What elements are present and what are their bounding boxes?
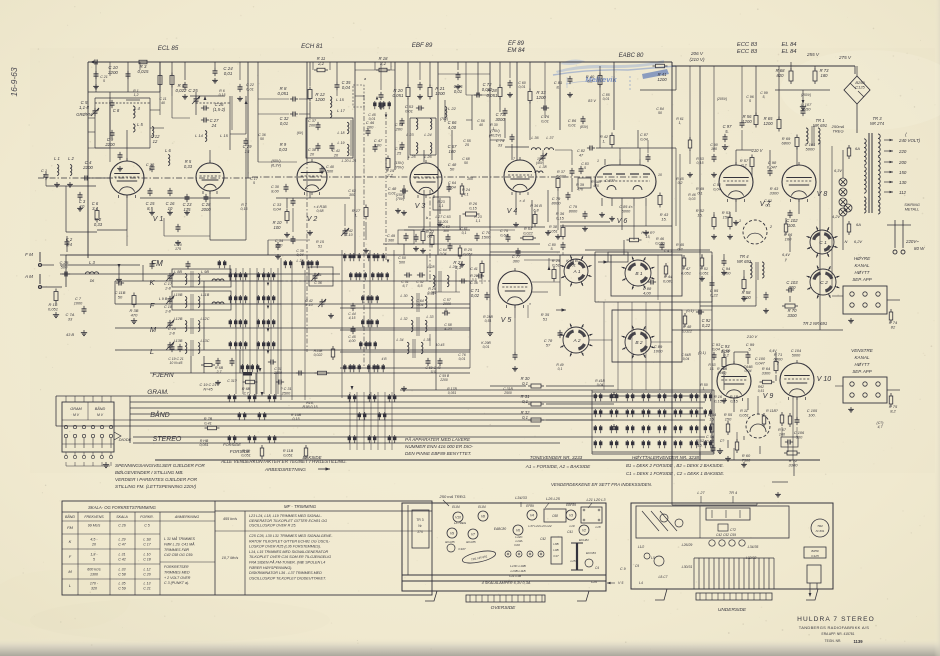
svg-text:100: 100 xyxy=(274,225,282,230)
svg-text:(40,5V): (40,5V) xyxy=(489,133,502,137)
svg-text:0,04: 0,04 xyxy=(712,347,721,352)
svg-text:R 49: R 49 xyxy=(696,187,705,191)
svg-text:(1,5-2): (1,5-2) xyxy=(213,107,226,112)
svg-text:5: 5 xyxy=(103,79,105,83)
svg-text:1,: 1, xyxy=(602,139,605,143)
svg-text:L 20 L 21: L 20 L 21 xyxy=(342,159,357,163)
svg-text:OSCILLOSKOP OVER R 25.: OSCILLOSKOP OVER R 25. xyxy=(249,524,296,528)
svg-text:210 V: 210 V xyxy=(746,334,758,339)
svg-text:16-9-63: 16-9-63 xyxy=(9,67,19,97)
svg-text:5?: 5? xyxy=(546,343,551,348)
svg-text:0,01: 0,01 xyxy=(603,97,610,101)
svg-text:C 1: C 1 xyxy=(819,240,827,246)
svg-text:+ 2 VOLT OVER: + 2 VOLT OVER xyxy=(164,576,191,580)
svg-text:GRAM: GRAM xyxy=(70,407,82,411)
svg-text:C 38: C 38 xyxy=(308,148,317,152)
svg-text:L 31: L 31 xyxy=(119,553,126,557)
svg-text:KANAL: KANAL xyxy=(854,355,870,360)
svg-text:2500: 2500 xyxy=(281,391,291,395)
svg-text:C9: C9 xyxy=(635,564,639,568)
svg-text:(210 V): (210 V) xyxy=(689,57,705,62)
svg-text:L21 L20 L3: L21 L20 L3 xyxy=(586,498,606,502)
svg-text:0,015: 0,015 xyxy=(138,69,150,74)
svg-text:6A: 6A xyxy=(856,222,861,227)
svg-text:V2: V2 xyxy=(582,529,586,533)
svg-text:0,01: 0,01 xyxy=(483,345,490,349)
svg-text:(70V): (70V) xyxy=(440,117,448,121)
svg-text:0,15: 0,15 xyxy=(556,216,565,221)
svg-text:5.: 5. xyxy=(748,347,751,352)
svg-text:275 V: 275 V xyxy=(838,55,852,60)
svg-text:0,051: 0,051 xyxy=(448,391,457,395)
svg-text:L18: L18 xyxy=(595,525,600,529)
svg-text:C 36: C 36 xyxy=(314,281,322,285)
svg-text:C 87: C 87 xyxy=(640,133,649,137)
svg-text:0,047: 0,047 xyxy=(767,165,778,170)
svg-text:L13C: L13C xyxy=(200,339,209,343)
svg-text:V6: V6 xyxy=(516,529,520,533)
svg-text:0,051: 0,051 xyxy=(548,229,558,233)
svg-text:Nr 691: Nr 691 xyxy=(816,529,825,533)
svg-text:50: 50 xyxy=(450,167,455,172)
svg-text:C 18: C 18 xyxy=(143,558,151,562)
svg-text:15: 15 xyxy=(245,149,250,154)
svg-text:C 25: C 25 xyxy=(188,88,198,93)
svg-text:R 46: R 46 xyxy=(656,237,665,241)
svg-text:SPENNINGSANGIVELSER GJELDER FO: SPENNINGSANGIVELSER GJELDER FOR xyxy=(115,463,206,468)
svg-text:L37 L24 L23 L22: L37 L24 L23 L22 xyxy=(528,524,552,528)
svg-text:TEGN. NR.: TEGN. NR. xyxy=(825,639,842,643)
svg-text:C 49: C 49 xyxy=(387,234,396,238)
svg-text:20: 20 xyxy=(333,153,339,157)
svg-text:C 7: C 7 xyxy=(75,297,82,301)
svg-text:0,01: 0,01 xyxy=(369,117,376,121)
svg-text:L14, L15 TRIMMES MED SIGNALGEN: L14, L15 TRIMMES MED SIGNALGENERATOR xyxy=(249,550,329,554)
svg-text:R 15: R 15 xyxy=(316,240,325,244)
svg-text:1,1: 1,1 xyxy=(476,219,481,223)
svg-text:0,22: 0,22 xyxy=(710,293,719,298)
svg-text:(60V): (60V) xyxy=(271,159,281,163)
svg-text:L 15: L 15 xyxy=(220,133,228,138)
svg-text:0,51: 0,51 xyxy=(485,319,492,323)
svg-text:C72: C72 xyxy=(730,528,736,532)
svg-text:7500: 7500 xyxy=(742,458,751,463)
svg-text:C 26: C 26 xyxy=(118,524,126,528)
svg-text:V8: V8 xyxy=(481,515,485,519)
svg-text:0,051: 0,051 xyxy=(278,91,290,96)
svg-text:1200: 1200 xyxy=(657,77,667,82)
svg-text:1139: 1139 xyxy=(853,639,863,644)
svg-text:L 36: L 36 xyxy=(531,136,539,140)
svg-text:15,: 15, xyxy=(646,235,651,239)
svg-text:C 41: C 41 xyxy=(332,149,340,153)
svg-text:OVERSIDE: OVERSIDE xyxy=(491,605,517,611)
svg-text:L4: L4 xyxy=(639,581,643,585)
svg-text:20: 20 xyxy=(309,152,315,156)
svg-text:L23 L24, L18, L19 TRIMMES MED: L23 L24, L18, L19 TRIMMES MED SIGNAL- xyxy=(249,514,323,518)
svg-text:R 37: R 37 xyxy=(557,170,566,174)
svg-text:L 8B: L 8B xyxy=(174,270,182,274)
svg-text:V 5: V 5 xyxy=(618,581,623,585)
svg-text:110: 110 xyxy=(430,370,436,374)
svg-text:L19: L19 xyxy=(569,524,574,528)
svg-text:4 SKALALAMPER 6,3V 0,3A: 4 SKALALAMPER 6,3V 0,3A xyxy=(482,581,531,585)
svg-text:1,8 -: 1,8 - xyxy=(90,553,98,557)
svg-text:1000: 1000 xyxy=(74,301,83,305)
svg-text:(0,1): (0,1) xyxy=(698,351,707,355)
svg-text:0,04: 0,04 xyxy=(440,252,447,256)
svg-text:FORKRETSER: FORKRETSER xyxy=(164,565,189,569)
svg-text:5000: 5000 xyxy=(806,147,816,152)
svg-text:2,2: 2,2 xyxy=(317,61,324,66)
svg-text:6,5: 6,5 xyxy=(418,284,423,288)
svg-text:0,04: 0,04 xyxy=(640,137,647,141)
svg-text:(83V): (83V) xyxy=(580,125,588,129)
svg-text:0,1: 0,1 xyxy=(522,415,528,420)
svg-text:SEP. APP: SEP. APP xyxy=(852,277,871,282)
svg-text:C41: C41 xyxy=(567,530,573,534)
svg-text:EL 84: EL 84 xyxy=(781,42,796,48)
svg-text:0,15: 0,15 xyxy=(241,207,248,211)
svg-text:80 W: 80 W xyxy=(914,246,925,251)
svg-text:C 17: C 17 xyxy=(164,282,173,286)
svg-text:NR 274: NR 274 xyxy=(870,121,885,126)
svg-text:0,01: 0,01 xyxy=(568,123,576,128)
svg-text:(6V): (6V) xyxy=(297,131,303,135)
svg-text:0,15: 0,15 xyxy=(697,161,704,165)
svg-text:? C 31: ? C 31 xyxy=(280,387,291,391)
svg-text:1200: 1200 xyxy=(763,121,773,126)
svg-text:2200: 2200 xyxy=(439,378,448,382)
svg-text:C 8: C 8 xyxy=(113,108,120,113)
svg-text:6,4V: 6,4V xyxy=(782,253,790,257)
svg-text:0,051: 0,051 xyxy=(428,291,437,295)
svg-text:C 64: C 64 xyxy=(448,181,456,185)
svg-text:LOSKOP OVER R25 (L36 FORSTEMME: LOSKOP OVER R25 (L36 FORSTEMMES). xyxy=(249,545,321,549)
svg-text:R 11B: R 11B xyxy=(283,449,294,453)
svg-text:0,051: 0,051 xyxy=(463,252,473,256)
svg-text:50: 50 xyxy=(260,137,264,141)
svg-text:GRØNN: GRØNN xyxy=(76,112,93,117)
svg-text:0,15: 0,15 xyxy=(219,93,226,97)
svg-text:C 5: C 5 xyxy=(144,524,150,528)
svg-text:FØR L 29. C41 MÅ: FØR L 29. C41 MÅ xyxy=(164,541,195,546)
svg-text:C20: C20 xyxy=(514,543,520,547)
svg-text:DEN PINNE EBF89 BENYTTET.: DEN PINNE EBF89 BENYTTET. xyxy=(405,451,472,456)
svg-text:SIKRING: SIKRING xyxy=(904,203,920,207)
svg-text:D6: D6 xyxy=(90,279,95,283)
svg-text:EL84: EL84 xyxy=(478,505,486,509)
svg-text:EM 84: EM 84 xyxy=(507,48,525,54)
svg-text:C 3 (PUNKT a).: C 3 (PUNKT a). xyxy=(164,581,189,585)
svg-text:a: a xyxy=(364,77,366,81)
svg-text:L 34: L 34 xyxy=(397,338,404,342)
svg-text:L 23: L 23 xyxy=(406,133,414,137)
svg-text:C 40: C 40 xyxy=(326,165,335,169)
svg-text:C42: C42 xyxy=(540,537,546,541)
svg-text:L 1B: L 1B xyxy=(143,538,151,542)
svg-text:C 42: C 42 xyxy=(118,558,126,562)
svg-text:C 20: C 20 xyxy=(168,327,177,331)
svg-text:C1 = DEKK 1 FORSIDE , C2 = DEK: C1 = DEKK 1 FORSIDE , C2 = DEKK 1 BAKSID… xyxy=(626,471,724,476)
svg-text:R 26: R 26 xyxy=(469,202,478,206)
svg-text:43 B: 43 B xyxy=(66,332,75,337)
svg-text:L 10: L 10 xyxy=(144,553,151,557)
svg-text:L 6: L 6 xyxy=(165,148,171,153)
svg-text:L 35: L 35 xyxy=(119,582,126,586)
svg-text:C 21: C 21 xyxy=(143,587,151,591)
svg-text:0,15: 0,15 xyxy=(293,417,300,421)
svg-text:0,1: 0,1 xyxy=(765,203,770,207)
svg-text:L 17: L 17 xyxy=(337,108,345,113)
svg-text:40: 40 xyxy=(479,123,483,127)
svg-text:L 27: L 27 xyxy=(697,491,705,495)
svg-text:L 31 MÅ TRIMMES: L 31 MÅ TRIMMES xyxy=(164,536,195,541)
svg-text:0,051: 0,051 xyxy=(241,453,251,457)
svg-text:6800: 6800 xyxy=(782,141,792,146)
svg-text:PÅ APPARATER MED LAVERE: PÅ APPARATER MED LAVERE xyxy=(405,436,471,442)
svg-text:L30/31: L30/31 xyxy=(682,565,693,569)
svg-text:BÅND: BÅND xyxy=(65,514,75,519)
svg-text:4,15: 4,15 xyxy=(349,316,356,320)
svg-text:TR 4: TR 4 xyxy=(729,491,737,495)
svg-text:TRIMMES MED: TRIMMES MED xyxy=(164,570,190,574)
svg-text:4,00: 4,00 xyxy=(643,291,652,296)
svg-text:160: 160 xyxy=(785,237,792,242)
svg-text:25: 25 xyxy=(396,151,402,156)
svg-text:5,: 5, xyxy=(763,95,766,99)
svg-text:300: 300 xyxy=(513,259,520,264)
svg-text:C 82: C 82 xyxy=(577,149,586,153)
svg-text:1200: 1200 xyxy=(315,97,325,102)
svg-text:8,00: 8,00 xyxy=(271,189,279,193)
svg-text:4,2V: 4,2V xyxy=(832,214,841,219)
svg-text:5: 5 xyxy=(749,99,751,103)
svg-text:5: 5 xyxy=(93,558,95,562)
svg-text:4,00: 4,00 xyxy=(448,125,457,130)
svg-text:NR 691: NR 691 xyxy=(813,123,827,128)
svg-text:ECL 85: ECL 85 xyxy=(158,45,179,52)
svg-text:BÅND: BÅND xyxy=(95,406,106,411)
svg-text:C68: C68 xyxy=(552,514,558,518)
svg-text:A M: A M xyxy=(24,274,33,279)
svg-text:C 79: C 79 xyxy=(569,205,578,209)
svg-text:STEREO: STEREO xyxy=(153,436,182,443)
svg-text:V 2: V 2 xyxy=(307,216,318,223)
svg-text:TILKOPLET OVER C16 SOM ER TILG: TILKOPLET OVER C16 SOM ER TILGJENGELIG xyxy=(249,555,331,559)
svg-text:HØYTT: HØYTT xyxy=(855,362,870,367)
svg-text:GENERATOR TILKOPLET GITTER ECH: GENERATOR TILKOPLET GITTER ECH81 OG xyxy=(249,519,327,523)
svg-text:170 -: 170 - xyxy=(90,582,99,586)
svg-text:2-8: 2-8 xyxy=(164,309,171,313)
svg-text:R1B 0,15: R1B 0,15 xyxy=(303,405,318,409)
svg-text:× 4: × 4 xyxy=(519,199,524,203)
svg-text:51: 51 xyxy=(318,244,322,248)
svg-text:33: 33 xyxy=(68,317,73,322)
svg-text:0,081: 0,081 xyxy=(663,279,673,284)
svg-text:V 8: V 8 xyxy=(817,191,828,198)
svg-text:C42 C58 OG C59.: C42 C58 OG C59. xyxy=(164,553,193,557)
svg-text:ECL85: ECL85 xyxy=(466,540,476,544)
svg-text:100.: 100. xyxy=(788,223,796,228)
svg-text:C 41: C 41 xyxy=(314,273,322,277)
svg-text:0,51: 0,51 xyxy=(758,389,765,393)
svg-text:TONEVENDER NR. 3233: TONEVENDER NR. 3233 xyxy=(530,455,583,460)
svg-text:7500: 7500 xyxy=(741,295,751,300)
svg-text:15.: 15. xyxy=(661,217,667,222)
svg-text:2500: 2500 xyxy=(503,391,512,395)
svg-text:2,2: 2,2 xyxy=(379,61,386,66)
svg-text:10-45: 10-45 xyxy=(436,343,445,347)
svg-text:(6,3V): (6,3V) xyxy=(271,163,282,167)
svg-text:200: 200 xyxy=(366,125,374,130)
svg-text:C 59: C 59 xyxy=(118,587,126,591)
svg-text:1,2: 1,2 xyxy=(134,93,139,97)
svg-text:V 1: V 1 xyxy=(153,216,164,223)
svg-text:1,: 1, xyxy=(679,121,682,125)
svg-text:A 1: A 1 xyxy=(572,269,580,275)
svg-text:0,022: 0,022 xyxy=(523,231,533,235)
svg-text:B 2: B 2 xyxy=(635,340,643,346)
svg-text:40: 40 xyxy=(161,101,165,105)
svg-text:C 4 ?: C 4 ? xyxy=(664,249,673,253)
svg-text:0,04: 0,04 xyxy=(713,187,720,191)
svg-text:C107: C107 xyxy=(458,547,466,551)
svg-text:TREG: TREG xyxy=(832,129,843,134)
svg-text:470: 470 xyxy=(131,313,138,318)
svg-text:8,: 8, xyxy=(556,85,559,90)
svg-text:L 9B: L 9B xyxy=(201,270,209,274)
svg-text:0,01: 0,01 xyxy=(519,85,526,89)
svg-text:ECH 81: ECH 81 xyxy=(301,43,323,50)
svg-text:5000: 5000 xyxy=(622,209,631,213)
svg-text:0,01: 0,01 xyxy=(246,87,253,91)
svg-text:V 10: V 10 xyxy=(817,376,832,383)
svg-text:R 11B?: R 11B? xyxy=(766,409,778,413)
svg-text:(15V): (15V) xyxy=(394,161,404,165)
svg-text:C 41: C 41 xyxy=(470,267,478,271)
svg-text:C125: C125 xyxy=(855,85,865,90)
svg-text:0,04: 0,04 xyxy=(342,85,351,90)
svg-text:(45V): (45V) xyxy=(536,161,544,165)
svg-text:VENDERDEKKENE ER SETT FRA INDE: VENDERDEKKENE ER SETT FRA INDEKSSIDEN. xyxy=(551,482,652,487)
svg-text:10,7 Mc/s: 10,7 Mc/s xyxy=(222,556,239,560)
svg-text:0,1: 0,1 xyxy=(522,381,528,386)
svg-text:50: 50 xyxy=(118,295,123,300)
svg-text:6,8: 6,8 xyxy=(533,208,539,212)
svg-text:0,1: 0,1 xyxy=(462,231,467,235)
svg-text:N=45: N=45 xyxy=(203,387,213,391)
svg-text:EBF 89: EBF 89 xyxy=(412,42,433,49)
svg-text:V 5: V 5 xyxy=(501,317,512,324)
svg-text:V3: V3 xyxy=(569,514,573,518)
svg-text:B1 = DEKK 2 FORSIDE , B2 = DEK: B1 = DEKK 2 FORSIDE , B2 = DEKK 2 BAKSID… xyxy=(626,463,724,468)
svg-text:1,: 1, xyxy=(703,387,706,391)
svg-text:C 61: C 61 xyxy=(764,199,772,203)
svg-text:0,2: 0,2 xyxy=(587,79,593,84)
svg-text:0,01: 0,01 xyxy=(388,191,396,196)
svg-text:R 39: R 39 xyxy=(576,183,585,187)
svg-text:DISKRIMINATOR L36 - L37 TRIMME: DISKRIMINATOR L36 - L37 TRIMMES MED xyxy=(249,571,322,575)
svg-text:100: 100 xyxy=(375,143,382,148)
svg-text:(70V): (70V) xyxy=(394,165,404,169)
svg-text:0,1: 0,1 xyxy=(697,191,702,195)
svg-text:TRIMMES FØR: TRIMMES FØR xyxy=(164,548,190,552)
svg-text:R 42: R 42 xyxy=(600,135,609,139)
svg-text:EL 84: EL 84 xyxy=(781,49,796,55)
svg-text:C 18: C 18 xyxy=(164,305,173,309)
svg-text:C125: C125 xyxy=(811,554,819,558)
svg-text:EABC80: EABC80 xyxy=(494,527,506,531)
svg-text:EABC 80: EABC 80 xyxy=(619,53,644,59)
svg-text:NR 692: NR 692 xyxy=(737,259,752,264)
svg-text:100.: 100. xyxy=(808,413,816,418)
svg-text:R 54: R 54 xyxy=(524,227,532,231)
svg-text:(R40): (R40) xyxy=(718,371,727,375)
svg-text:R 51: R 51 xyxy=(700,267,708,271)
svg-text:HØYRE: HØYRE xyxy=(854,256,871,261)
svg-text:y: y xyxy=(776,361,779,365)
svg-text:ERA APP. NR. 415781: ERA APP. NR. 415781 xyxy=(822,632,855,636)
svg-text:(250V): (250V) xyxy=(801,93,811,97)
svg-text:0,1: 0,1 xyxy=(522,399,528,404)
svg-text:L 33: L 33 xyxy=(427,315,434,319)
svg-text:L 32: L 32 xyxy=(401,317,408,321)
svg-text:L10B: L10B xyxy=(174,293,183,297)
svg-text:99 Mc/s: 99 Mc/s xyxy=(88,524,101,528)
svg-text:L 26: L 26 xyxy=(424,155,432,159)
svg-text:EBF89: EBF89 xyxy=(566,503,576,507)
svg-text:TR 2 NR 691: TR 2 NR 691 xyxy=(803,321,827,326)
svg-text:0,04: 0,04 xyxy=(273,207,282,212)
svg-text:C 36: C 36 xyxy=(470,281,478,285)
svg-text:M V: M V xyxy=(73,413,80,417)
svg-text:V9: V9 xyxy=(450,532,454,536)
svg-text:82: 82 xyxy=(891,325,896,330)
svg-text:300: 300 xyxy=(789,285,797,290)
svg-text:470: 470 xyxy=(593,184,599,188)
svg-text:FM: FM xyxy=(67,525,73,530)
svg-text:L13B L11B: L13B L11B xyxy=(510,569,525,573)
svg-text:10: 10 xyxy=(658,173,662,177)
svg-text:150: 150 xyxy=(725,417,732,422)
svg-text:C4: C4 xyxy=(595,566,599,570)
svg-text:33: 33 xyxy=(498,143,503,148)
svg-text:EL84: EL84 xyxy=(452,505,460,509)
svg-text:3300: 3300 xyxy=(787,313,797,318)
svg-text:L 24: L 24 xyxy=(424,133,431,137)
svg-text:1,1: 1,1 xyxy=(439,204,444,208)
svg-text:8000: 8000 xyxy=(569,209,578,213)
svg-text:L8B: L8B xyxy=(553,542,558,546)
svg-text:0,04: 0,04 xyxy=(597,383,604,387)
svg-text:MF - TRIMMING: MF - TRIMMING xyxy=(284,504,317,509)
svg-text:4,5 -: 4,5 - xyxy=(90,538,98,542)
svg-text:0,051: 0,051 xyxy=(48,307,58,312)
svg-text:TANDBERGS RADIOFABRIKK A/S: TANDBERGS RADIOFABRIKK A/S xyxy=(799,625,869,630)
svg-text:3300: 3300 xyxy=(770,191,780,196)
svg-text:15.: 15. xyxy=(697,213,703,218)
svg-text:150: 150 xyxy=(899,170,907,175)
svg-text:R 38: R 38 xyxy=(549,225,558,229)
svg-text:NUMMER ENN 416 000 ER DIO-: NUMMER ENN 416 000 ER DIO- xyxy=(405,444,474,449)
svg-text:B 1: B 1 xyxy=(635,271,643,277)
svg-text:0,15: 0,15 xyxy=(469,206,477,210)
svg-text:R 25: R 25 xyxy=(464,248,473,252)
svg-text:DIODE: DIODE xyxy=(119,437,132,442)
svg-text:SKALA: SKALA xyxy=(116,515,128,519)
svg-text:L 35: L 35 xyxy=(424,338,431,342)
